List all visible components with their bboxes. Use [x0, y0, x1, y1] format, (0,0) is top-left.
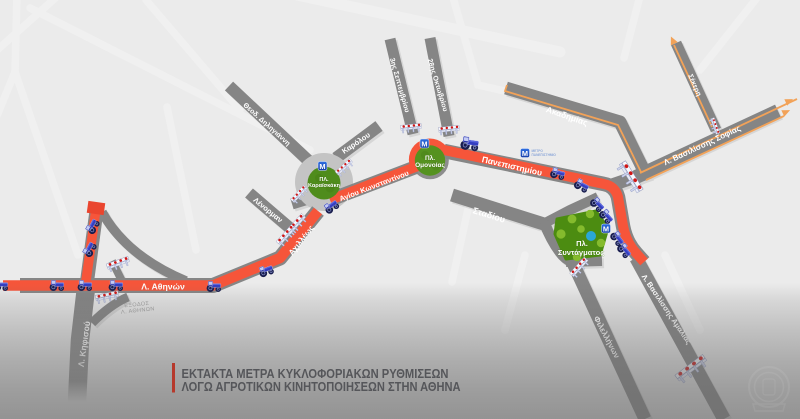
svg-text:ΛΟΓΩ ΑΓΡΟΤΙΚΩΝ ΚΙΝΗΤΟΠΟΙΗΣΕΩΝ: ΛΟΓΩ ΑΓΡΟΤΙΚΩΝ ΚΙΝΗΤΟΠΟΙΗΣΕΩΝ ΣΤΗΝ ΑΘΗΝΑ — [182, 379, 462, 394]
